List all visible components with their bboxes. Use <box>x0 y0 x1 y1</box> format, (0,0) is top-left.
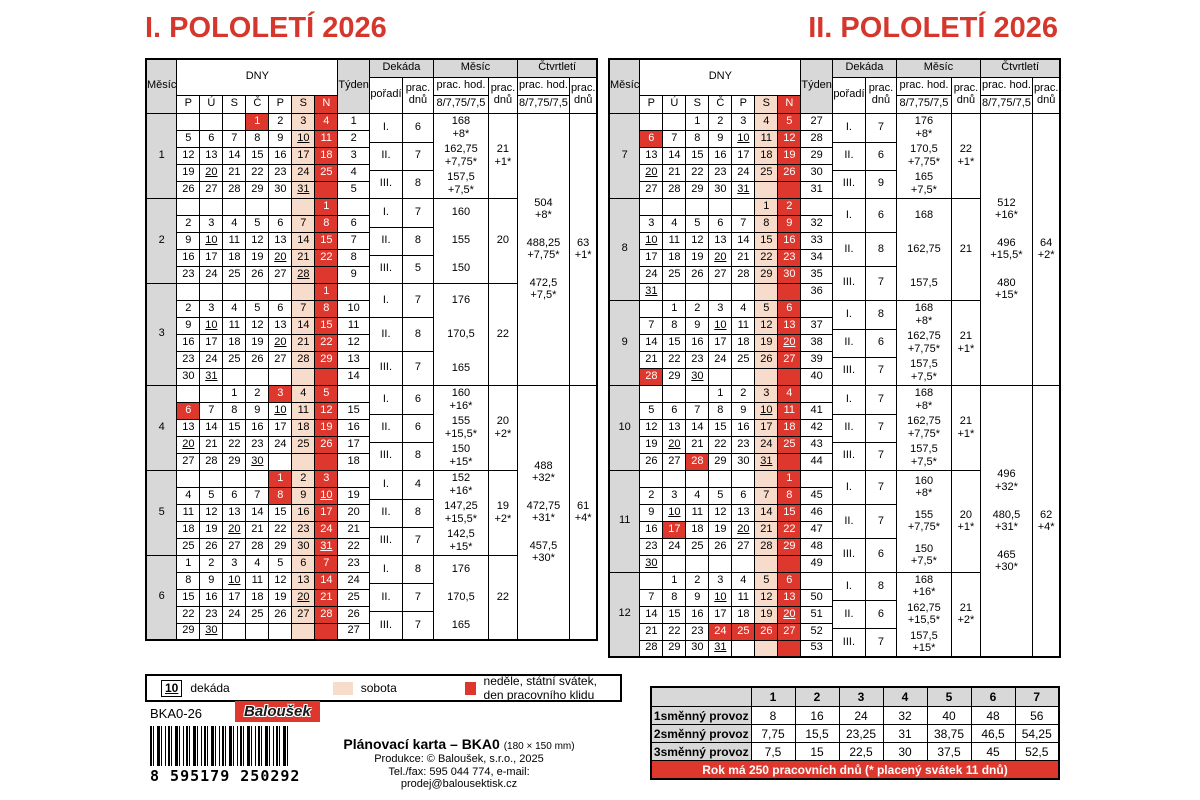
value-line: 176 <box>452 294 470 306</box>
day-cell: 30 <box>686 368 709 385</box>
day-cell: 22 <box>315 334 338 351</box>
dekada-order: II. <box>833 600 866 628</box>
empty-day-cell <box>709 198 732 215</box>
value-line: 21 <box>495 143 512 155</box>
value-entry: 20+1* <box>958 509 975 533</box>
value-line: 157,5 <box>910 277 938 289</box>
dekada-cell: I.7II.8III.7 <box>369 283 433 385</box>
dekada-workdays: 8 <box>866 232 896 266</box>
value-entry: 61+4* <box>575 500 592 524</box>
empty-day-cell <box>686 555 709 572</box>
day-cell: 11 <box>686 504 709 521</box>
dekada-order: I. <box>833 386 866 414</box>
empty-day-cell <box>778 453 801 470</box>
value-line: 150 <box>911 543 937 555</box>
value-entry: 465+30* <box>995 549 1018 573</box>
day-cell: 28 <box>640 368 663 385</box>
value-entry: 168+16* <box>912 574 935 598</box>
value-line: +1* <box>958 521 975 533</box>
balousek-logo: Baloušek <box>235 701 320 722</box>
day-cell: 2 <box>200 555 223 572</box>
value-entry: 176+8* <box>915 115 933 139</box>
week-number-cell: 5 <box>338 181 370 198</box>
day-cell: 13 <box>663 419 686 436</box>
day-cell: 7 <box>315 555 338 572</box>
week-number-cell <box>338 470 370 487</box>
day-cell: 19 <box>755 334 778 351</box>
week-number-cell <box>338 198 370 215</box>
dekada-group-header: Dekáda <box>369 59 433 77</box>
value-line: 162,75 <box>907 602 941 614</box>
dekada-workdays: 7 <box>403 611 433 639</box>
day-cell: 6 <box>223 487 246 504</box>
month-workhours-cell: 160+8*155+7,75*150+7,5* <box>896 470 951 572</box>
dekada-workdays: 7 <box>866 357 896 385</box>
barcode-block: 8 595179 250292 <box>150 726 300 785</box>
shift-count-header: 6 <box>971 687 1015 707</box>
value-line: 160 <box>915 475 933 487</box>
day-cell: 1 <box>709 385 732 402</box>
day-cell: 21 <box>755 521 778 538</box>
empty-day-cell <box>732 555 755 572</box>
month-number: 5 <box>146 470 177 555</box>
day-letter-header: S <box>755 95 778 113</box>
day-cell: 8 <box>709 402 732 419</box>
week-number-cell: 38 <box>801 334 833 351</box>
day-cell: 7 <box>732 215 755 232</box>
dekada-order: III. <box>833 357 866 385</box>
value-line: 162,75 <box>907 415 941 427</box>
day-cell: 4 <box>778 385 801 402</box>
value-line: 142,5 <box>447 528 475 540</box>
dekada-workdays: 7 <box>866 628 896 656</box>
day-cell: 18 <box>778 419 801 436</box>
day-cell: 3 <box>732 113 755 130</box>
value-line: 61 <box>575 500 592 512</box>
dekada-workdays: 8 <box>403 442 433 470</box>
dekada-cell: I.8II.6III.7 <box>832 572 896 657</box>
day-cell: 18 <box>223 334 246 351</box>
month-workdays-values: 22 <box>489 556 517 640</box>
day-cell: 5 <box>200 487 223 504</box>
empty-day-cell <box>292 283 315 300</box>
day-cell: 13 <box>292 572 315 589</box>
day-cell: 29 <box>269 538 292 555</box>
barcode-digits: 8 595179 250292 <box>150 767 300 785</box>
day-cell: 22 <box>778 521 801 538</box>
empty-day-cell <box>778 181 801 198</box>
day-cell: 5 <box>755 300 778 317</box>
dekada-workdays-header: prac. dnů <box>402 77 433 113</box>
week-number-cell: 14 <box>338 368 370 385</box>
day-cell: 14 <box>732 232 755 249</box>
day-letter-header: P <box>177 95 200 113</box>
quarter-workdays-values: 62+4* <box>1033 386 1060 657</box>
day-cell: 27 <box>778 623 801 640</box>
day-cell: 26 <box>755 623 778 640</box>
day-cell: 4 <box>686 487 709 504</box>
day-cell: 14 <box>223 147 246 164</box>
month-number: 11 <box>609 470 640 572</box>
second-half-calendar: MěsícDNYTýdenDekádaMěsícČtvrtletípořadíp… <box>608 58 1061 658</box>
value-line: 165 <box>452 362 470 374</box>
day-cell: 28 <box>200 453 223 470</box>
week-number-cell: 28 <box>801 130 833 147</box>
empty-day-cell <box>640 300 663 317</box>
value-line: +31* <box>527 512 561 524</box>
empty-day-cell <box>640 198 663 215</box>
value-line: +7,75* <box>527 249 561 261</box>
month-workdays-values: 21+1* <box>952 386 980 470</box>
value-line: 157,5 <box>910 443 938 455</box>
month-workdays-values: 21 <box>952 199 980 300</box>
day-cell: 13 <box>269 317 292 334</box>
day-cell: 2 <box>732 385 755 402</box>
value-entry: 504+8* <box>534 197 552 221</box>
dekada-workdays: 7 <box>403 142 433 170</box>
dekada-grid: I.8II.6III.7 <box>833 301 896 385</box>
day-cell: 23 <box>640 538 663 555</box>
value-line: 157,5 <box>447 171 475 183</box>
day-cell: 24 <box>663 538 686 555</box>
day-cell: 13 <box>778 589 801 606</box>
second-half-table: MěsícDNYTýdenDekádaMěsícČtvrtletípořadíp… <box>608 58 1061 658</box>
day-cell: 8 <box>686 130 709 147</box>
day-cell: 2 <box>292 470 315 487</box>
day-cell: 17 <box>640 249 663 266</box>
empty-day-cell <box>640 470 663 487</box>
dekada-workdays: 7 <box>403 527 433 555</box>
month-workhours-values: 168162,75157,5 <box>897 199 951 300</box>
week-number-cell: 35 <box>801 266 833 283</box>
day-cell: 13 <box>709 232 732 249</box>
week-number-cell <box>801 470 833 487</box>
dekada-sample: 10 <box>161 680 182 697</box>
empty-day-cell <box>732 470 755 487</box>
day-cell: 6 <box>778 300 801 317</box>
value-line: 20 <box>495 415 512 427</box>
day-cell: 4 <box>223 215 246 232</box>
shift-row-label: 2směnný provoz <box>651 725 751 743</box>
shift-count-header: 2 <box>795 687 839 707</box>
month-workhours-values: 160155150 <box>434 199 488 283</box>
empty-day-cell <box>200 113 223 130</box>
day-cell: 28 <box>755 538 778 555</box>
day-cell: 9 <box>640 504 663 521</box>
shift-hours-value: 22,5 <box>839 743 883 761</box>
shift-hours-value: 15,5 <box>795 725 839 743</box>
quarter-workhours-cell: 512+16*496+15,5*480+15* <box>980 113 1032 385</box>
dekada-grid: I.6II.8III.7 <box>833 199 896 300</box>
value-entry: 160+8* <box>915 475 933 499</box>
value-line: 496 <box>990 237 1022 249</box>
week-number-cell: 47 <box>801 521 833 538</box>
day-cell: 26 <box>686 266 709 283</box>
empty-day-cell <box>315 181 338 198</box>
day-cell: 5 <box>640 402 663 419</box>
value-line: +31* <box>993 521 1021 533</box>
month-workhours-cell: 176+8*170,5+7,75*165+7,5* <box>896 113 951 198</box>
day-cell: 30 <box>200 623 223 640</box>
value-line: +1* <box>958 343 975 355</box>
day-cell: 9 <box>732 402 755 419</box>
quarter-workdays-cell: 61+4* <box>569 385 597 640</box>
week-number-cell: 51 <box>801 606 833 623</box>
day-cell: 7 <box>292 215 315 232</box>
week-column-header: Týden <box>338 59 370 113</box>
empty-day-cell <box>292 623 315 640</box>
week-number-cell: 15 <box>338 402 370 419</box>
day-cell: 19 <box>709 521 732 538</box>
dekada-cell: I.8II.7III.7 <box>369 555 433 640</box>
day-cell: 10 <box>200 317 223 334</box>
value-entry: 162,75+7,75* <box>907 330 941 354</box>
value-line: 150 <box>452 262 470 274</box>
day-cell: 9 <box>709 130 732 147</box>
day-cell: 27 <box>663 453 686 470</box>
day-cell: 23 <box>200 606 223 623</box>
dekada-grid: I.6II.6III.8 <box>370 386 433 470</box>
empty-day-cell <box>292 198 315 215</box>
day-cell: 19 <box>246 334 269 351</box>
day-cell: 10 <box>709 589 732 606</box>
day-cell: 30 <box>732 453 755 470</box>
value-line: +1* <box>958 156 975 168</box>
day-cell: 6 <box>292 555 315 572</box>
empty-day-cell <box>778 368 801 385</box>
value-line: 168 <box>915 302 933 314</box>
day-cell: 13 <box>778 317 801 334</box>
empty-day-cell <box>269 198 292 215</box>
empty-day-cell <box>686 385 709 402</box>
day-cell: 11 <box>755 130 778 147</box>
day-cell: 24 <box>200 351 223 368</box>
day-cell: 30 <box>686 640 709 657</box>
week-number-cell: 34 <box>801 249 833 266</box>
month-workhours-values: 168+8*162,75+7,75*157,5+7,5* <box>897 301 951 385</box>
week-number-cell: 46 <box>801 504 833 521</box>
day-cell: 26 <box>246 266 269 283</box>
month-workhours-cell: 168+16*162,75+15,5*157,5+15* <box>896 572 951 657</box>
empty-day-cell <box>269 368 292 385</box>
week-number-cell: 31 <box>801 181 833 198</box>
day-cell: 8 <box>663 317 686 334</box>
week-number-cell: 25 <box>338 589 370 606</box>
month-workdays-cell: 20+2* <box>488 385 517 470</box>
value-line: +2* <box>958 614 975 626</box>
day-cell: 30 <box>292 538 315 555</box>
dekada-order: III. <box>370 611 403 639</box>
day-cell: 12 <box>177 147 200 164</box>
month-workdays-values: 21+1* <box>952 301 980 385</box>
empty-day-cell <box>200 385 223 402</box>
day-cell: 5 <box>755 572 778 589</box>
value-line: 20 <box>497 234 509 246</box>
value-line: 504 <box>534 197 552 209</box>
day-cell: 7 <box>686 402 709 419</box>
value-line: 19 <box>495 500 512 512</box>
dekada-workdays: 7 <box>403 199 433 227</box>
day-cell: 26 <box>269 606 292 623</box>
week-number-cell: 41 <box>801 402 833 419</box>
day-cell: 15 <box>223 419 246 436</box>
value-line: 170,5 <box>447 328 475 340</box>
year-workdays-note: Rok má 250 pracovních dnů (* placený svá… <box>651 761 1059 780</box>
empty-day-cell <box>246 198 269 215</box>
day-cell: 15 <box>269 504 292 521</box>
value-line: +15* <box>447 541 475 553</box>
day-cell: 25 <box>755 164 778 181</box>
dekada-workdays: 7 <box>403 284 433 318</box>
value-line: 176 <box>452 563 470 575</box>
quarter-workdays-values: 64+2* <box>1033 114 1060 385</box>
quarter-hours-spec-header: 8/7,75/7,5 <box>517 95 569 113</box>
dekada-order: III. <box>370 170 403 198</box>
day-cell: 15 <box>177 589 200 606</box>
day-cell: 15 <box>663 334 686 351</box>
day-cell: 19 <box>177 164 200 181</box>
shift-hours-value: 52,5 <box>1015 743 1059 761</box>
second-half-title: II. POLOLETÍ 2026 <box>608 12 1058 45</box>
publisher-line3: Tel./fax: 595 044 774, e-mail: prodej@ba… <box>330 766 588 790</box>
dekada-order: III. <box>370 351 403 385</box>
dekada-group-header: Dekáda <box>832 59 896 77</box>
day-cell: 4 <box>755 113 778 130</box>
day-cell: 20 <box>269 249 292 266</box>
dekada-grid: I.8II.7III.7 <box>370 556 433 640</box>
publisher-line1: Plánovací karta – BKA0 (180 × 150 mm) <box>330 736 588 752</box>
week-number-cell: 20 <box>338 504 370 521</box>
value-line: 162,75 <box>444 143 478 155</box>
day-cell: 2 <box>177 215 200 232</box>
week-number-cell: 19 <box>338 487 370 504</box>
week-number-cell: 6 <box>338 215 370 232</box>
day-cell: 25 <box>732 623 755 640</box>
month-number: 7 <box>609 113 640 198</box>
value-line: +7,5* <box>910 456 938 468</box>
dekada-workdays: 6 <box>866 600 896 628</box>
day-cell: 5 <box>778 113 801 130</box>
day-cell: 1 <box>223 385 246 402</box>
month-workhours-cell: 160+16*155+15,5*150+15* <box>433 385 488 470</box>
day-letter-header: P <box>640 95 663 113</box>
dekada-grid: I.4II.8III.7 <box>370 471 433 555</box>
dekada-workdays: 6 <box>403 386 433 414</box>
day-cell: 1 <box>755 198 778 215</box>
day-cell: 4 <box>663 215 686 232</box>
week-number-cell: 21 <box>338 521 370 538</box>
shift-hours-table-block: 12345671směnný provoz81624324048562směnn… <box>650 686 1060 780</box>
dekada-workdays: 7 <box>866 414 896 442</box>
publisher-product: Plánovací karta – BKA0 <box>343 736 499 752</box>
week-number-cell: 2 <box>338 130 370 147</box>
value-entry: 165+7,5* <box>911 171 937 195</box>
day-cell: 6 <box>663 402 686 419</box>
planning-card-page: I. POLOLETÍ 2026 II. POLOLETÍ 2026 Měsíc… <box>0 0 1200 800</box>
value-line: 162,75 <box>907 243 941 255</box>
day-cell: 11 <box>732 317 755 334</box>
dekada-order: III. <box>833 538 866 572</box>
day-cell: 11 <box>778 402 801 419</box>
day-letter-header: S <box>292 95 315 113</box>
day-letter-header: N <box>778 95 801 113</box>
empty-day-cell <box>177 198 200 215</box>
month-workdays-values: 19+2* <box>489 471 517 555</box>
value-line: +16* <box>995 209 1018 221</box>
value-entry: 155+15,5* <box>445 415 477 439</box>
value-line: +15* <box>910 642 938 654</box>
week-number-cell: 23 <box>338 555 370 572</box>
day-cell: 16 <box>177 334 200 351</box>
value-line: +7,75* <box>444 156 478 168</box>
value-entry: 62+4* <box>1038 509 1055 533</box>
week-number-cell <box>338 283 370 300</box>
day-cell: 7 <box>223 130 246 147</box>
day-cell: 13 <box>269 232 292 249</box>
day-cell: 10 <box>200 232 223 249</box>
day-cell: 20 <box>269 334 292 351</box>
value-entry: 157,5+7,5* <box>447 171 475 195</box>
month-number: 6 <box>146 555 177 640</box>
month-column-header: Měsíc <box>146 59 177 113</box>
day-cell: 26 <box>246 351 269 368</box>
dekada-order: II. <box>833 329 866 357</box>
month-workhours-cell: 168+8*162,75+7,75*157,5+7,5* <box>433 113 488 198</box>
dekada-workdays: 8 <box>403 556 433 584</box>
shift-hours-value: 38,75 <box>927 725 971 743</box>
empty-day-cell <box>755 283 778 300</box>
day-cell: 5 <box>177 130 200 147</box>
shift-hours-value: 37,5 <box>927 743 971 761</box>
empty-day-cell <box>686 198 709 215</box>
value-entry: 170,5+7,75* <box>908 143 940 167</box>
week-number-cell: 29 <box>801 147 833 164</box>
empty-day-cell <box>200 283 223 300</box>
day-cell: 24 <box>640 266 663 283</box>
day-cell: 23 <box>686 351 709 368</box>
day-cell: 22 <box>269 521 292 538</box>
value-line: 63 <box>575 237 592 249</box>
day-cell: 12 <box>246 232 269 249</box>
empty-day-cell <box>223 283 246 300</box>
value-line: 152 <box>449 472 472 484</box>
value-entry: 21+1* <box>958 330 975 354</box>
value-line: +2* <box>495 428 512 440</box>
legend-dekada-item: 10 dekáda <box>161 680 230 697</box>
day-cell: 8 <box>177 572 200 589</box>
value-line: +1* <box>495 156 512 168</box>
day-cell: 15 <box>315 232 338 249</box>
day-cell: 17 <box>292 147 315 164</box>
day-cell: 18 <box>732 606 755 623</box>
value-entry: 472,75+31* <box>527 500 561 524</box>
day-cell: 14 <box>246 504 269 521</box>
shift-hours-value: 54,25 <box>1015 725 1059 743</box>
day-cell: 29 <box>663 640 686 657</box>
day-cell: 1 <box>177 555 200 572</box>
month-workdays-values: 20+2* <box>489 386 517 470</box>
month-workhours-values: 176170,5165 <box>434 556 488 640</box>
day-cell: 14 <box>663 147 686 164</box>
empty-day-cell <box>640 572 663 589</box>
day-cell: 16 <box>686 606 709 623</box>
week-column-header: Týden <box>801 59 833 113</box>
day-cell: 10 <box>709 317 732 334</box>
shift-hours-value: 56 <box>1015 707 1059 725</box>
month-workhours-cell: 168162,75157,5 <box>896 198 951 300</box>
day-cell: 20 <box>200 164 223 181</box>
month-workhours-cell: 168+8*162,75+7,75*157,5+7,5* <box>896 385 951 470</box>
